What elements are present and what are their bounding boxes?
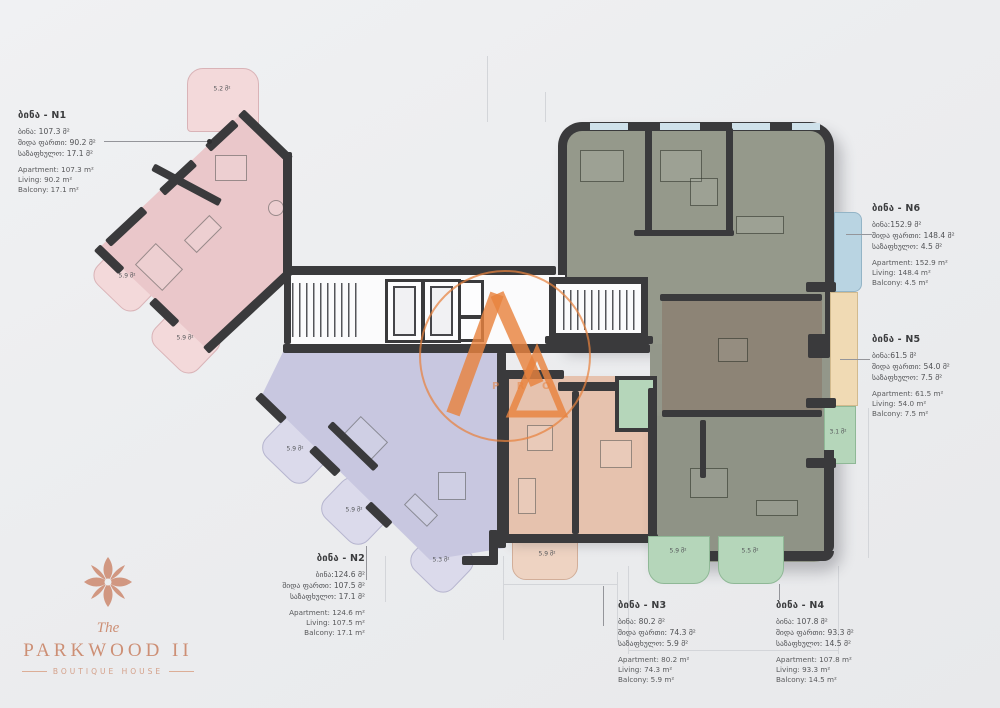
apartment-label-n6: ბინა - N6 ბინა:152.9 მ² შიდა ფართი: 148.…: [872, 203, 997, 289]
apartment-eng-specs: Apartment: 107.3 m² Living: 90.2 m² Balc…: [18, 165, 178, 196]
apartment-title: ბინა - N3: [618, 600, 758, 611]
wall-segment: [824, 450, 834, 554]
n6-window-strip: [792, 123, 820, 130]
apartment-label-n3: ბინა - N3 ბინა: 80.2 მ² შიდა ფართი: 74.3…: [618, 600, 758, 686]
wall-segment: [283, 344, 650, 353]
balcony-area-label: 5.2 მ²: [214, 86, 231, 93]
balcony-n3: [512, 542, 578, 580]
brand-name: PARKWOOD II: [22, 640, 194, 662]
page: 5.2 მ² 5.9 მ² 5.9 მ² 5.9 მ² 5.9 მ² 5.3 მ…: [0, 0, 1000, 708]
apartment-geo-specs: ბინა:124.6 მ² შიდა ფართი: 107.5 მ² საზაფ…: [233, 569, 365, 602]
wall-segment: [572, 391, 579, 534]
furniture-outline: [527, 425, 553, 451]
balcony-area-label: 5.9 მ²: [670, 548, 687, 555]
leader-line: [603, 586, 604, 626]
apartment-geo-specs: ბინა:152.9 მ² შიდა ფართი: 148.4 მ² საზაფ…: [872, 219, 997, 252]
wall-segment: [660, 294, 822, 301]
balcony-n4-green-a: [648, 536, 710, 584]
balcony-area-label: 5.3 მ²: [433, 557, 450, 564]
wall-segment: [726, 128, 733, 232]
dimension-line: [503, 584, 617, 585]
apartment-geo-specs: ბინა: 107.8 მ² შიდა ფართი: 93.3 მ² საზაფ…: [776, 616, 916, 649]
dimension-line: [503, 556, 504, 640]
wall-segment: [489, 530, 498, 560]
brand-logo-block: The PARKWOOD II BOUTIQUE HOUSE: [22, 554, 194, 676]
leader-dot: [207, 139, 212, 144]
balcony-area-label: 5.5 მ²: [742, 548, 759, 555]
apartment-eng-specs: Apartment: 124.6 m² Living: 107.5 m² Bal…: [233, 608, 365, 639]
dimension-line: [545, 92, 546, 122]
apartment-geo-specs: ბინა: 80.2 მ² შიდა ფართი: 74.3 მ² საზაფხ…: [618, 616, 758, 649]
apartment-eng-specs: Apartment: 107.8 m² Living: 93.3 m² Balc…: [776, 655, 916, 686]
furniture-outline: [215, 155, 247, 181]
furniture-outline: [690, 178, 718, 206]
wall-segment: [648, 388, 657, 448]
furniture-outline: [600, 440, 632, 468]
wall-segment: [634, 230, 734, 236]
furniture-outline: [718, 338, 748, 362]
furniture-outline: [756, 500, 798, 516]
wall-segment: [558, 382, 618, 391]
balcony-n4-green-b: [718, 536, 784, 584]
wall-segment: [806, 398, 836, 408]
wall-segment: [808, 334, 830, 358]
n6-window-strip: [732, 123, 770, 130]
furniture-outline: [736, 216, 784, 234]
brand-subtitle-row: BOUTIQUE HOUSE: [22, 667, 194, 676]
furniture-outline: [268, 200, 284, 216]
balcony-n5-tan: [830, 292, 858, 406]
divider-line: [169, 671, 194, 672]
apartment-label-n4: ბინა - N4 ბინა: 107.8 მ² შიდა ფართი: 93.…: [776, 600, 916, 686]
apartment-eng-specs: Apartment: 80.2 m² Living: 74.3 m² Balco…: [618, 655, 758, 686]
wall-segment: [545, 336, 653, 344]
furniture-outline: [438, 472, 466, 500]
divider-line: [22, 671, 47, 672]
apartment-label-n1: ბინა - N1 ბინა: 107.3 მ² შიდა ფართი: 90.…: [18, 110, 178, 196]
leader-line: [840, 359, 870, 360]
furniture-outline: [690, 468, 728, 498]
brand-prefix: The: [22, 620, 194, 637]
balcony-area-label: 3.1 მ²: [830, 429, 847, 436]
apartment-title: ბინა - N5: [872, 334, 997, 345]
wall-segment: [284, 266, 556, 275]
apartment-title: ბინა - N4: [776, 600, 916, 611]
apartment-geo-specs: ბინა:61.5 მ² შიდა ფართი: 54.0 მ² საზაფხუ…: [872, 350, 997, 383]
balcony-area-label: 5.9 მ²: [539, 551, 556, 558]
dimension-line: [487, 56, 488, 122]
balcony-area-label: 5.9 მ²: [177, 335, 194, 342]
apartment-geo-specs: ბინა: 107.3 მ² შიდა ფართი: 90.2 მ² საზაფ…: [18, 126, 178, 159]
leader-line: [846, 234, 872, 235]
apartment-title: ბინა - N1: [18, 110, 178, 121]
balcony-area-label: 5.9 მ²: [287, 446, 304, 453]
apartment-eng-specs: Apartment: 61.5 m² Living: 54.0 m² Balco…: [872, 389, 997, 420]
brand-subtitle: BOUTIQUE HOUSE: [53, 667, 163, 676]
staircase: [563, 290, 635, 330]
wall-segment: [283, 152, 292, 276]
elevator-car: [393, 286, 416, 336]
apartment-label-n2: ბინა - N2 ბინა:124.6 მ² შიდა ფართი: 107.…: [233, 553, 365, 639]
n6-window-strip: [660, 123, 700, 130]
elevator-car: [430, 286, 453, 336]
apartment-eng-specs: Apartment: 152.9 m² Living: 148.4 m² Bal…: [872, 258, 997, 289]
wall-segment: [806, 282, 836, 292]
apartment-label-n5: ბინა - N5 ბინა:61.5 მ² შიდა ფართი: 54.0 …: [872, 334, 997, 420]
apartment-title: ბინა - N6: [872, 203, 997, 214]
elevator: [422, 279, 461, 343]
leader-line: [779, 584, 780, 600]
furniture-outline: [518, 478, 536, 514]
wall-segment: [500, 370, 564, 379]
elevator: [385, 279, 424, 343]
wall-segment: [662, 410, 822, 417]
wall-segment: [500, 534, 658, 543]
flower-ornament-icon: [81, 554, 135, 610]
wall-segment: [284, 275, 291, 344]
leader-line: [366, 546, 367, 580]
wall-segment: [645, 128, 652, 232]
balcony-area-label: 5.9 მ²: [346, 507, 363, 514]
balcony-area-label: 5.9 მ²: [119, 273, 136, 280]
service-shaft: [458, 280, 484, 318]
n6-window-strip: [590, 123, 628, 130]
wall-segment: [700, 420, 706, 478]
wall-segment: [500, 374, 509, 542]
apartment-title: ბინა - N2: [233, 553, 365, 564]
balcony-n6-blue: [834, 212, 862, 292]
staircase: [292, 283, 362, 337]
furniture-outline: [580, 150, 624, 182]
dimension-line: [868, 408, 869, 558]
dimension-line: [385, 556, 386, 602]
service-shaft: [458, 316, 484, 342]
